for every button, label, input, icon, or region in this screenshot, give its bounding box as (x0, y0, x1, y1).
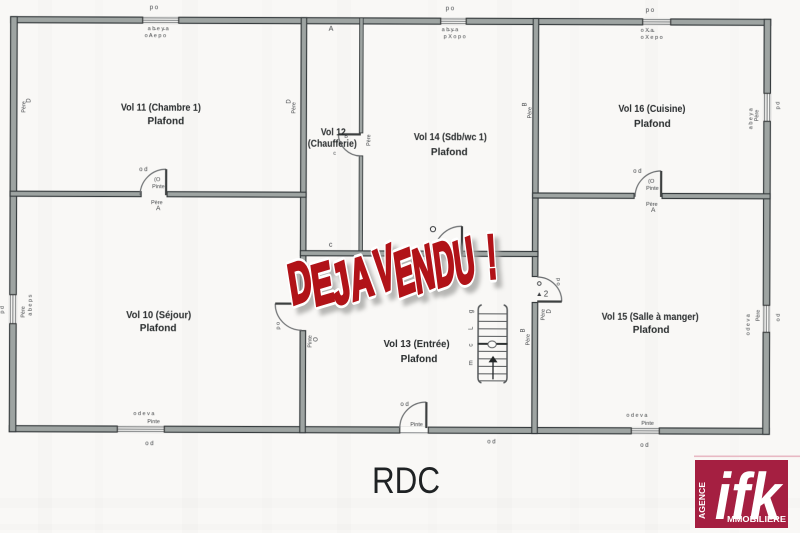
svg-text:Vol 10 (Séjour): Vol 10 (Séjour) (126, 310, 191, 321)
svg-text:p o: p o (150, 5, 159, 11)
svg-text:a b̵ y̵ a: a b̵ y̵ a (442, 27, 459, 33)
svg-text:AGENCE: AGENCE (698, 481, 707, 519)
svg-text:Pinte: Pinte (410, 422, 423, 428)
svg-text:p X o p o: p X o p o (444, 34, 466, 40)
svg-text:Pinte: Pinte (147, 419, 160, 425)
svg-text:m c L g: m c L g (469, 304, 475, 365)
svg-text:(Chaufferie): (Chaufferie) (308, 139, 357, 150)
svg-text:Vol 12: Vol 12 (321, 127, 346, 138)
svg-text:Père: Père (366, 134, 372, 146)
svg-text:A: A (329, 26, 334, 33)
svg-text:o d e v a: o d e v a (626, 413, 648, 419)
svg-text:(O: (O (648, 179, 655, 185)
svg-text:D: D (547, 309, 553, 314)
svg-text:Plafond: Plafond (401, 354, 438, 365)
svg-text:D: D (286, 99, 292, 104)
svg-text:a b e p s: a b e p s (28, 294, 34, 315)
svg-text:Père: Père (526, 334, 532, 346)
svg-text:2: 2 (544, 290, 549, 299)
svg-text:Vol 16 (Cuisine): Vol 16 (Cuisine) (618, 104, 685, 115)
svg-text:o d e v a: o d e v a (746, 313, 752, 335)
svg-text:D: D (26, 98, 32, 103)
svg-text:o d: o d (400, 402, 408, 408)
svg-text:A: A (651, 207, 656, 214)
svg-text:p o: p o (276, 322, 282, 330)
svg-text:B: B (522, 102, 528, 106)
svg-text:Plafond: Plafond (633, 325, 670, 336)
svg-text:o d: o d (487, 439, 495, 445)
svg-text:a b̵ e y̵ a: a b̵ e y̵ a (148, 26, 170, 32)
svg-text:o d e v a: o d e v a (133, 411, 155, 417)
svg-text:Pinte: Pinte (646, 186, 659, 192)
svg-text:B: B (521, 328, 527, 332)
svg-text:Vol 11 (Chambre 1): Vol 11 (Chambre 1) (121, 103, 201, 114)
svg-text:p o: p o (646, 8, 655, 14)
svg-text:o X̵ a̵: o X̵ a̵ (641, 28, 655, 34)
svg-text:o d: o d (776, 314, 782, 322)
svg-text:Plafond: Plafond (148, 116, 185, 127)
svg-text:Vol 13 (Entrée): Vol 13 (Entrée) (384, 339, 450, 350)
svg-text:Plafond: Plafond (140, 323, 177, 334)
svg-text:Père: Père (21, 306, 27, 318)
svg-text:p o: p o (446, 6, 455, 12)
svg-text:A: A (156, 205, 161, 212)
svg-text:Plafond: Plafond (431, 147, 468, 158)
svg-text:O: O (314, 337, 320, 342)
svg-text:o d: o d (633, 169, 641, 175)
svg-text:Pinte: Pinte (641, 421, 654, 427)
svg-text:Père: Père (756, 310, 762, 322)
svg-text:o X e p o: o X e p o (641, 35, 663, 41)
svg-text:Père: Père (754, 110, 760, 122)
svg-text:Pinte: Pinte (152, 184, 165, 190)
svg-text:Plafond: Plafond (634, 119, 671, 130)
svg-text:o d: o d (139, 167, 147, 173)
svg-text:p d: p d (775, 102, 781, 110)
svg-text:MMOBILIERE: MMOBILIERE (727, 515, 787, 524)
svg-text:Père: Père (527, 107, 533, 119)
svg-text:Vol 15 (Salle à manger): Vol 15 (Salle à manger) (602, 312, 699, 323)
svg-text:o d: o d (145, 441, 153, 447)
svg-text:o d: o d (640, 443, 648, 449)
svg-text:p d: p d (0, 306, 6, 314)
svg-text:RDC: RDC (372, 460, 440, 501)
svg-text:c: c (329, 242, 333, 249)
svg-text:c: c (333, 151, 336, 157)
svg-text:B: B (344, 134, 348, 140)
svg-text:(O: (O (154, 177, 161, 183)
svg-text:Vol 14 (Sdb/wc 1): Vol 14 (Sdb/wc 1) (414, 132, 487, 143)
svg-text:o A e p o: o A e p o (145, 33, 166, 39)
svg-text:o d: o d (556, 278, 562, 286)
